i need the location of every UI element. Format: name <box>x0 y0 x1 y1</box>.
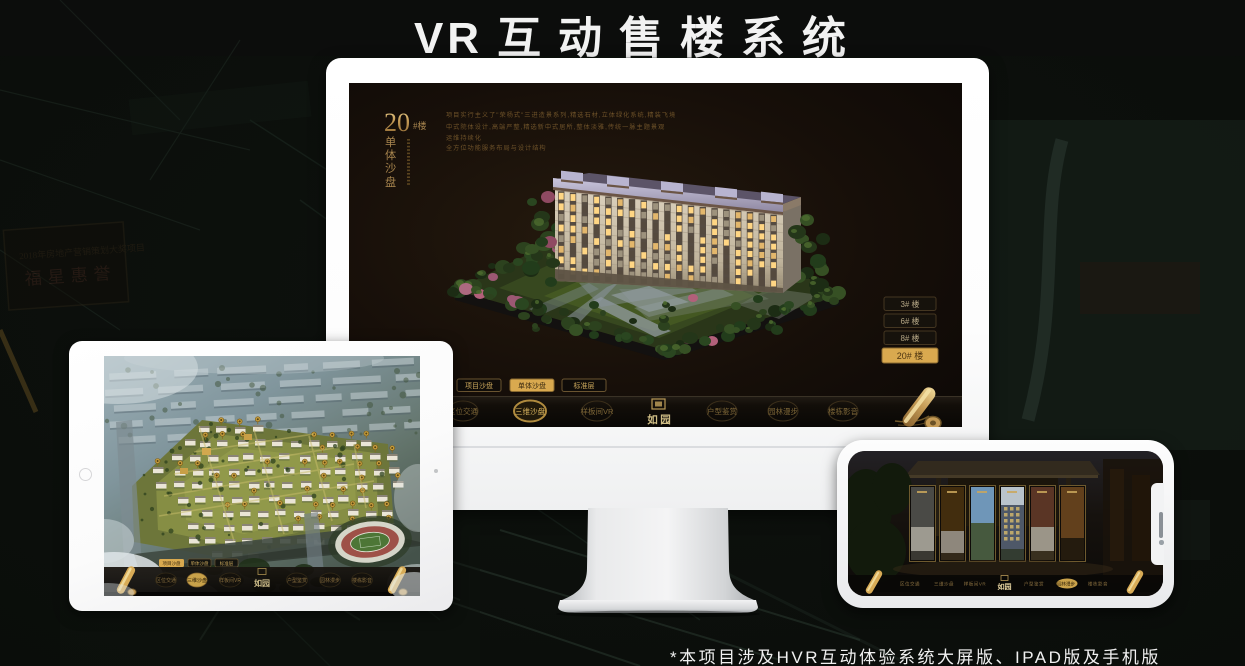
svg-text:项目沙盘: 项目沙盘 <box>465 381 493 390</box>
svg-text:样板间VR: 样板间VR <box>581 406 615 416</box>
svg-text:标准层: 标准层 <box>574 381 595 390</box>
svg-text:户型鉴赏: 户型鉴赏 <box>707 406 737 416</box>
svg-text:3# 楼: 3# 楼 <box>900 299 919 309</box>
svg-text:样板间VR: 样板间VR <box>964 581 987 588</box>
svg-text:三维沙盘: 三维沙盘 <box>187 577 207 584</box>
svg-text:区位交通: 区位交通 <box>900 581 920 588</box>
svg-text:全方位功能服务布局与设计结构: 全方位功能服务布局与设计结构 <box>446 144 547 152</box>
svg-text:中式院体设计,高端严整,精选新中式居所,整体淡雅,传统一脉主: 中式院体设计,高端严整,精选新中式居所,整体淡雅,传统一脉主题景观 <box>446 123 665 131</box>
svg-text:如 园: 如 园 <box>647 413 671 426</box>
svg-text:如园: 如园 <box>998 582 1012 591</box>
svg-text:楼栋影音: 楼栋影音 <box>1088 581 1108 588</box>
svg-text:#楼: #楼 <box>413 120 427 131</box>
svg-text:8# 楼: 8# 楼 <box>900 333 919 343</box>
svg-text:20: 20 <box>384 108 410 137</box>
svg-text:单: 单 <box>385 136 396 149</box>
svg-text:沙: 沙 <box>385 162 396 175</box>
svg-text:三维沙盘: 三维沙盘 <box>515 406 545 416</box>
svg-text:项目实行主义了"荣杨式"三进造景系列,精选石材,立体绿化系统: 项目实行主义了"荣杨式"三进造景系列,精选石材,立体绿化系统,精装飞境 <box>446 111 676 119</box>
svg-text:项目沙盘: 项目沙盘 <box>163 560 181 567</box>
svg-text:单体沙盘: 单体沙盘 <box>518 381 546 390</box>
svg-text:盘: 盘 <box>385 175 396 189</box>
svg-text:样板间VR: 样板间VR <box>219 577 241 584</box>
svg-text:园林漫步: 园林漫步 <box>1057 581 1075 588</box>
svg-text:区位交通: 区位交通 <box>156 577 176 584</box>
svg-text:单体沙盘: 单体沙盘 <box>191 560 209 567</box>
svg-text:20# 楼: 20# 楼 <box>897 350 924 361</box>
svg-text:6# 楼: 6# 楼 <box>900 316 919 326</box>
svg-text:运维持续化: 运维持续化 <box>446 134 482 142</box>
svg-text:如园: 如园 <box>254 578 270 588</box>
svg-text:三维沙盘: 三维沙盘 <box>934 581 954 588</box>
svg-text:园林漫步: 园林漫步 <box>320 577 340 584</box>
svg-text:户型鉴赏: 户型鉴赏 <box>1024 581 1044 588</box>
svg-text:楼栋影音: 楼栋影音 <box>828 406 858 416</box>
svg-text:体: 体 <box>385 148 396 162</box>
svg-text:楼栋影音: 楼栋影音 <box>352 577 372 584</box>
svg-text:标准层: 标准层 <box>220 560 234 567</box>
svg-text:户型鉴赏: 户型鉴赏 <box>287 577 307 584</box>
svg-text:园林漫步: 园林漫步 <box>768 406 798 416</box>
